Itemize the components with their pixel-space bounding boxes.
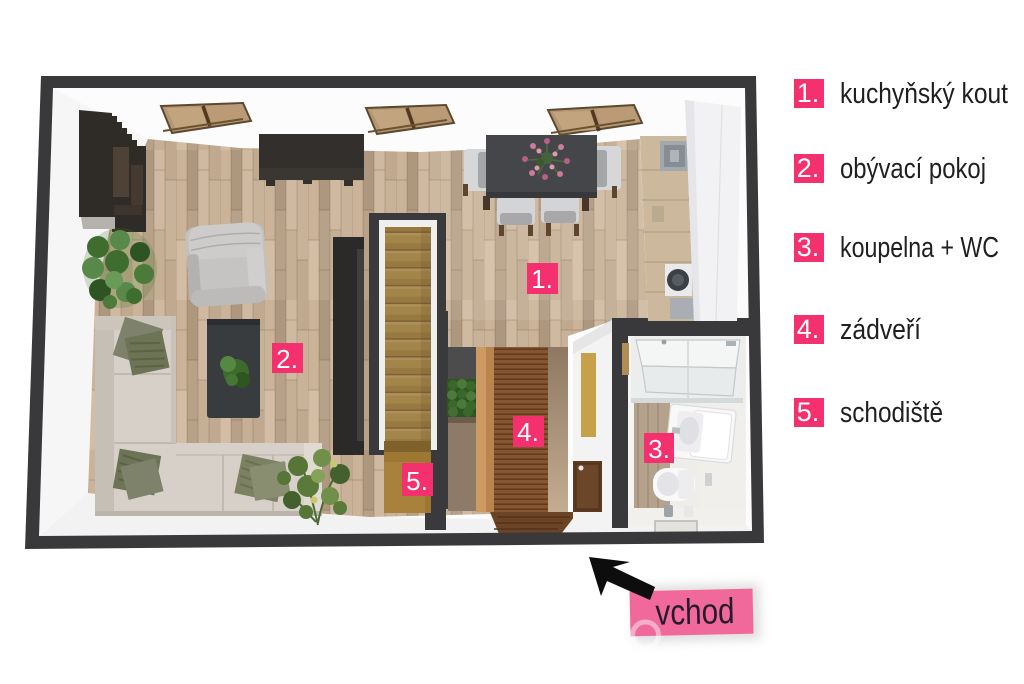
svg-text:obývací pokoj: obývací pokoj bbox=[840, 153, 986, 185]
svg-text:4.: 4. bbox=[797, 314, 820, 344]
svg-text:3.: 3. bbox=[648, 434, 670, 464]
svg-text:kuchyňský kout: kuchyňský kout bbox=[840, 78, 1008, 110]
svg-text:2.: 2. bbox=[797, 153, 820, 183]
svg-text:koupelna + WC: koupelna + WC bbox=[840, 232, 999, 264]
svg-text:zádveří: zádveří bbox=[840, 314, 921, 346]
svg-text:1.: 1. bbox=[531, 264, 553, 294]
svg-text:3.: 3. bbox=[797, 232, 820, 262]
svg-text:schodiště: schodiště bbox=[840, 397, 943, 429]
svg-text:5.: 5. bbox=[797, 397, 820, 427]
svg-text:vchod: vchod bbox=[655, 590, 735, 633]
svg-text:2.: 2. bbox=[276, 344, 298, 374]
svg-text:1.: 1. bbox=[797, 78, 820, 108]
svg-text:5.: 5. bbox=[406, 466, 428, 496]
svg-text:4.: 4. bbox=[517, 417, 539, 447]
